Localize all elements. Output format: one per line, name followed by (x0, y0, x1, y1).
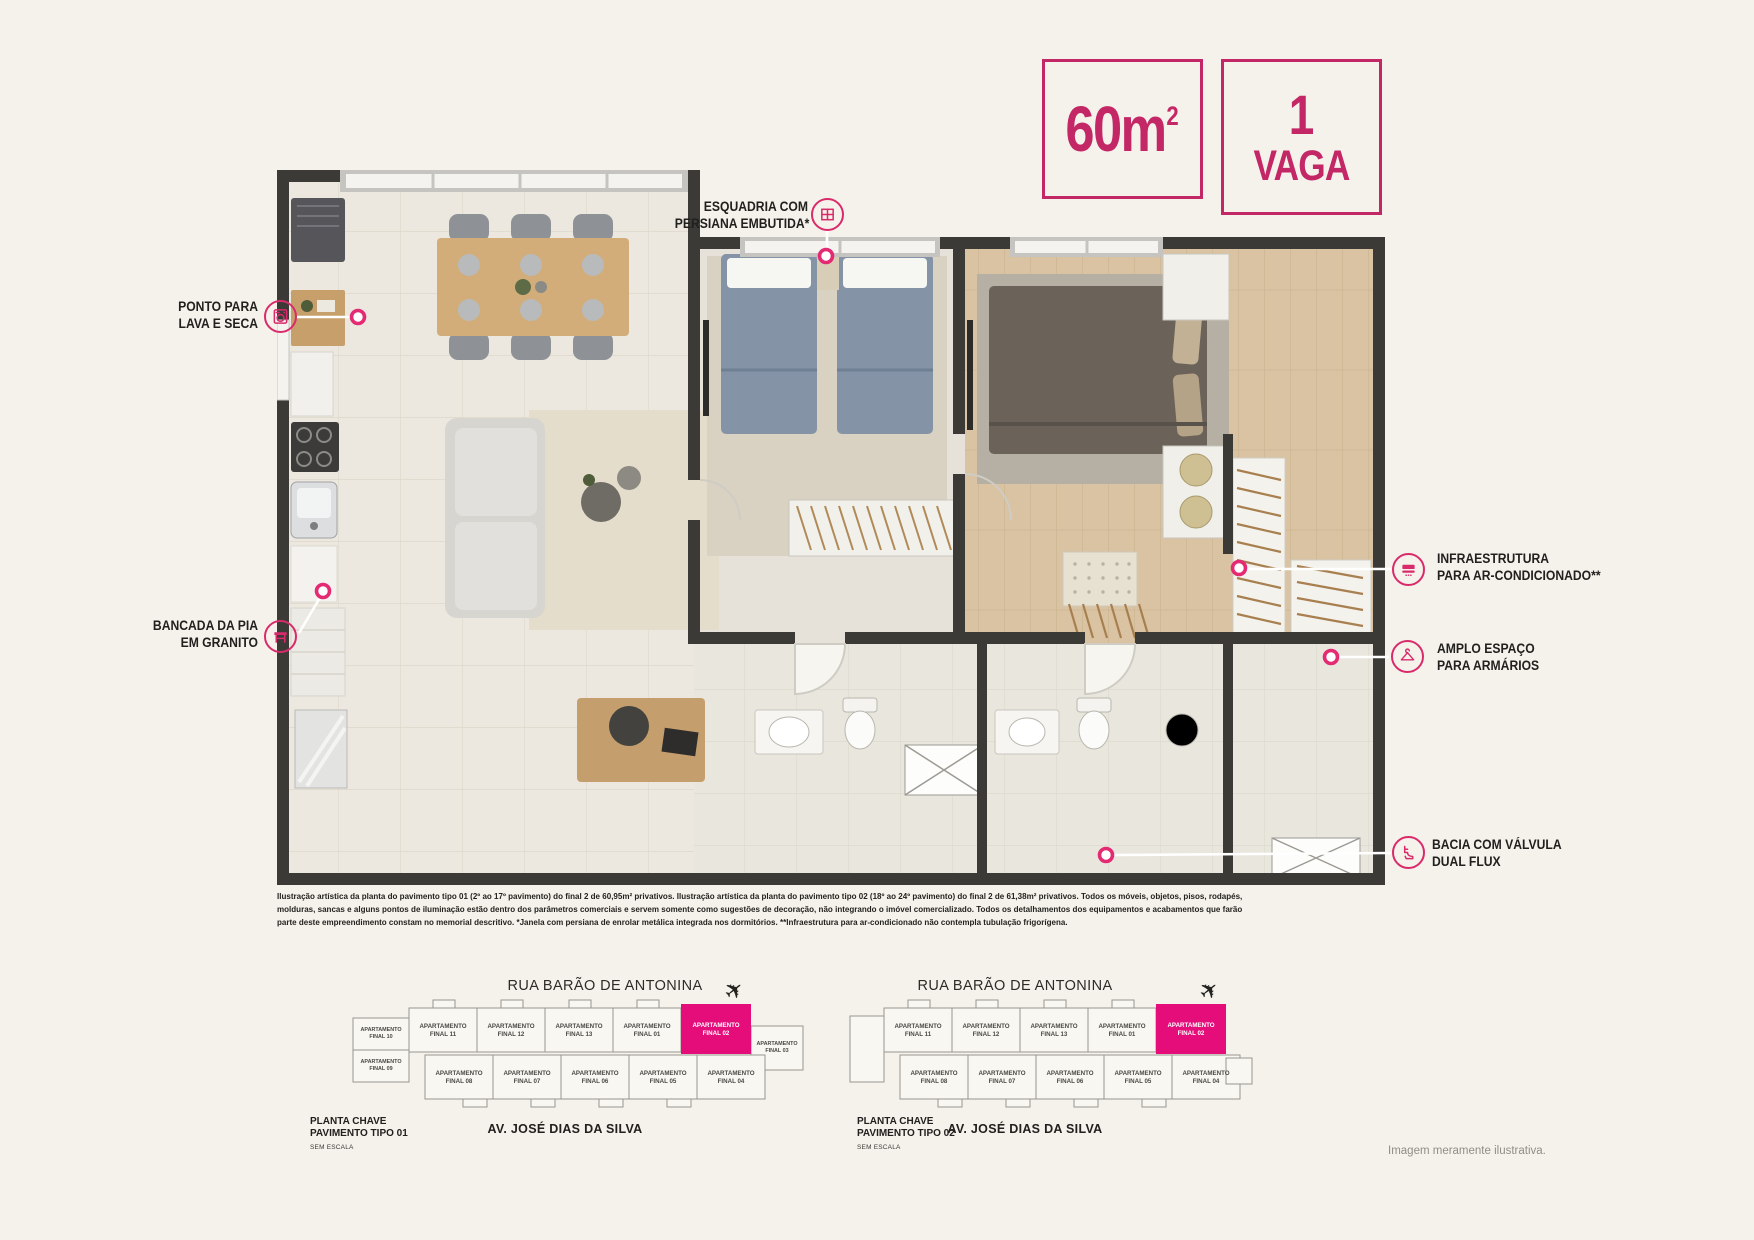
svg-text:FINAL 06: FINAL 06 (1057, 1078, 1084, 1085)
suite-tv-panel (967, 320, 973, 430)
counter (291, 546, 337, 602)
ac-unit-icon (1392, 553, 1425, 586)
svg-text:APARTAMENTO: APARTAMENTO (360, 1059, 401, 1065)
tall-cabinet (291, 352, 333, 416)
svg-text:FINAL 05: FINAL 05 (650, 1078, 677, 1085)
svg-text:APARTAMENTO: APARTAMENTO (487, 1023, 534, 1030)
street-av-jose-2: AV. JOSÉ DIAS DA SILVA (865, 1122, 1185, 1136)
bedroom1 (703, 246, 959, 556)
svg-text:FINAL 02: FINAL 02 (1178, 1030, 1205, 1037)
svg-text:FINAL 01: FINAL 01 (1109, 1031, 1136, 1038)
sink2 (1009, 718, 1045, 746)
floorplan-page: 60m2 1 VAGA PONTO PARA LAVA E SECA BANCA… (0, 0, 1754, 1240)
toilet-icon (1392, 836, 1425, 869)
svg-text:FINAL 11: FINAL 11 (430, 1031, 457, 1038)
svg-text:APARTAMENTO: APARTAMENTO (1098, 1023, 1145, 1030)
shower2-head (1166, 714, 1198, 746)
svg-text:FINAL 03: FINAL 03 (765, 1048, 788, 1054)
highlighted-unit-2 (1156, 1004, 1226, 1054)
area-badge-text: 60m2 (1066, 92, 1179, 166)
dining-table (437, 238, 629, 336)
suite-dresser (1163, 254, 1229, 320)
svg-text:FINAL 04: FINAL 04 (1193, 1078, 1220, 1085)
svg-text:APARTAMENTO: APARTAMENTO (1114, 1070, 1161, 1077)
keyplan-tipo-01: RUA BARÃO DE ANTONINA ✈ APARTAMENTO FINA… (305, 978, 785, 1178)
svg-text:APARTAMENTO: APARTAMENTO (435, 1070, 482, 1077)
callout-bacia-label: BACIA COM VÁLVULA DUAL FLUX (1432, 837, 1562, 870)
svg-text:APARTAMENTO: APARTAMENTO (623, 1023, 670, 1030)
dining-area (437, 214, 629, 360)
svg-text:APARTAMENTO: APARTAMENTO (962, 1023, 1009, 1030)
svg-text:APARTAMENTO: APARTAMENTO (360, 1027, 401, 1033)
svg-text:APARTAMENTO: APARTAMENTO (910, 1070, 957, 1077)
svg-text:FINAL 10: FINAL 10 (369, 1034, 392, 1040)
svg-text:FINAL 07: FINAL 07 (514, 1078, 541, 1085)
fridge (291, 198, 345, 262)
svg-text:FINAL 05: FINAL 05 (1125, 1078, 1152, 1085)
svg-text:FINAL 13: FINAL 13 (1041, 1031, 1068, 1038)
callout-bancada-label: BANCADA DA PIA EM GRANITO (132, 618, 258, 651)
callout-infra-ac-label: INFRAESTRUTURA PARA AR-CONDICIONADO** (1437, 551, 1601, 584)
svg-text:FINAL 09: FINAL 09 (369, 1066, 392, 1072)
svg-text:APARTAMENTO: APARTAMENTO (639, 1070, 686, 1077)
washer-icon (264, 300, 297, 333)
keyplan-building-1: APARTAMENTO FINAL 11 APARTAMENTO FINAL 1… (345, 998, 815, 1118)
svg-text:APARTAMENTO: APARTAMENTO (503, 1070, 550, 1077)
keyplan-building-2: APARTAMENTO FINAL 11 APARTAMENTO FINAL 1… (820, 998, 1290, 1118)
svg-text:APARTAMENTO: APARTAMENTO (978, 1070, 1025, 1077)
desk-chair (609, 706, 649, 746)
window-icon (811, 198, 844, 231)
svg-text:APARTAMENTO: APARTAMENTO (1030, 1023, 1077, 1030)
callout-armarios-label: AMPLO ESPAÇO PARA ARMÁRIOS (1437, 641, 1539, 674)
street-av-jose-1: AV. JOSÉ DIAS DA SILVA (405, 1122, 725, 1136)
svg-text:FINAL 12: FINAL 12 (498, 1031, 525, 1038)
toilet2-bowl (1079, 711, 1109, 749)
svg-text:FINAL 11: FINAL 11 (905, 1031, 932, 1038)
svg-text:FINAL 07: FINAL 07 (989, 1078, 1016, 1085)
svg-text:FINAL 02: FINAL 02 (703, 1030, 730, 1037)
toilet2-tank (1077, 698, 1111, 712)
area-badge: 60m2 (1042, 59, 1203, 199)
legal-disclaimer: Ilustração artística da planta do pavime… (277, 891, 1242, 929)
caption-planta-chave-1: PLANTA CHAVE PAVIMENTO TIPO 01 SEM ESCAL… (310, 1116, 408, 1154)
keyplan-tipo-02: RUA BARÃO DE ANTONINA ✈ APARTAMENTO FINA… (790, 978, 1270, 1178)
svg-text:APARTAMENTO: APARTAMENTO (1167, 1022, 1214, 1029)
street-rua-barao-1: RUA BARÃO DE ANTONINA (445, 978, 765, 994)
coffee-table (581, 482, 621, 522)
bedroom1-tv-panel (703, 320, 709, 416)
svg-text:APARTAMENTO: APARTAMENTO (894, 1023, 941, 1030)
illustrative-note: Imagem meramente ilustrativa. (1388, 1145, 1546, 1157)
svg-text:FINAL 08: FINAL 08 (921, 1078, 948, 1085)
callout-esquadria-label: ESQUADRIA COM PERSIANA EMBUTIDA* (675, 199, 808, 232)
svg-text:FINAL 13: FINAL 13 (566, 1031, 593, 1038)
svg-text:APARTAMENTO: APARTAMENTO (707, 1070, 754, 1077)
svg-text:APARTAMENTO: APARTAMENTO (692, 1022, 739, 1029)
parking-badge: 1 VAGA (1221, 59, 1382, 215)
floor-plan (277, 170, 1385, 885)
svg-text:APARTAMENTO: APARTAMENTO (1046, 1070, 1093, 1077)
callout-lava-seca-label: PONTO PARA LAVA E SECA (161, 299, 258, 332)
parking-badge-text: 1 VAGA (1254, 87, 1350, 188)
svg-text:APARTAMENTO: APARTAMENTO (555, 1023, 602, 1030)
svg-text:APARTAMENTO: APARTAMENTO (1182, 1070, 1229, 1077)
svg-text:FINAL 01: FINAL 01 (634, 1031, 661, 1038)
toilet1-tank (843, 698, 877, 712)
coffee-shelf (291, 290, 345, 346)
svg-text:FINAL 12: FINAL 12 (973, 1031, 1000, 1038)
toilet1-bowl (845, 711, 875, 749)
street-rua-barao-2: RUA BARÃO DE ANTONINA (855, 978, 1175, 994)
svg-text:FINAL 04: FINAL 04 (718, 1078, 745, 1085)
sink1 (769, 717, 809, 747)
highlighted-unit-1 (681, 1004, 751, 1054)
hanger-icon (1391, 640, 1424, 673)
svg-text:FINAL 08: FINAL 08 (446, 1078, 473, 1085)
svg-text:APARTAMENTO: APARTAMENTO (571, 1070, 618, 1077)
counter-icon (264, 620, 297, 653)
svg-text:FINAL 06: FINAL 06 (582, 1078, 609, 1085)
svg-text:APARTAMENTO: APARTAMENTO (419, 1023, 466, 1030)
